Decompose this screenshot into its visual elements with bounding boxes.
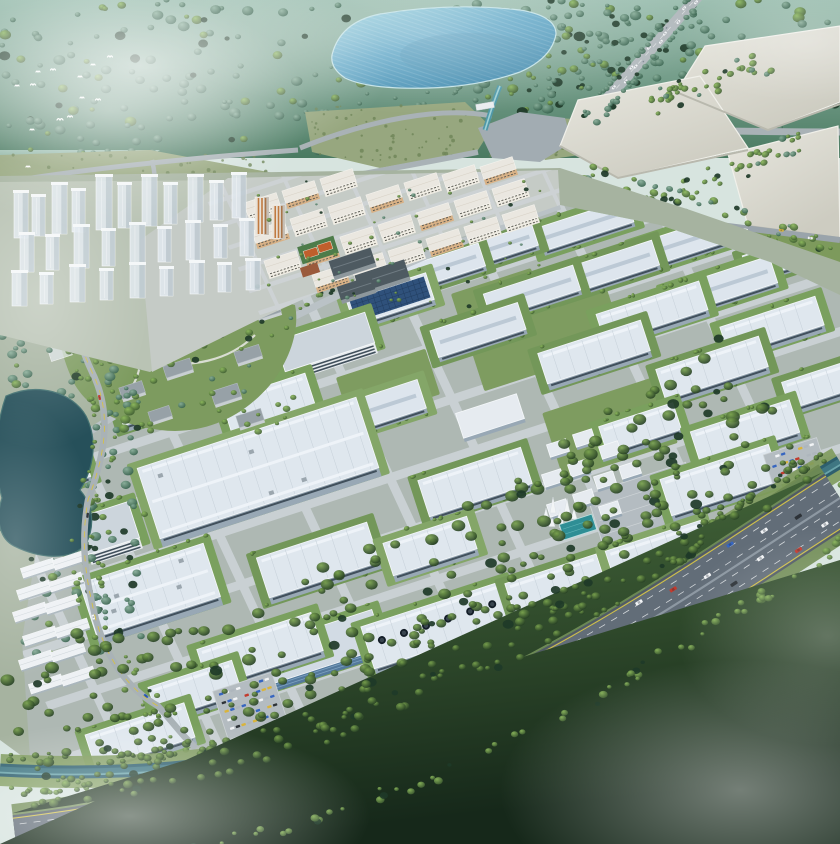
bird (30, 129, 34, 130)
orange-accent-tower (255, 197, 269, 235)
bird (108, 56, 113, 57)
ghost-tower (239, 218, 255, 256)
bird (91, 64, 95, 65)
ghost-tower (245, 258, 261, 290)
ghost-tower (217, 262, 232, 292)
bird (36, 71, 40, 72)
bird (26, 166, 30, 167)
ghost-tower (157, 226, 172, 262)
bird (80, 97, 84, 98)
ghost-tower (159, 266, 174, 296)
orange-accent-tower (272, 205, 285, 239)
aerial-rendering-stage (0, 0, 840, 844)
bird (68, 116, 73, 117)
bird (15, 85, 19, 86)
bird (96, 99, 101, 100)
ghost-tower (185, 220, 201, 260)
ghost-tower (189, 260, 205, 294)
bird (78, 76, 82, 77)
bird (51, 69, 56, 70)
ghost-tower (213, 224, 228, 258)
industrial-park-aerial-rendering (0, 0, 840, 844)
bird (31, 84, 36, 85)
